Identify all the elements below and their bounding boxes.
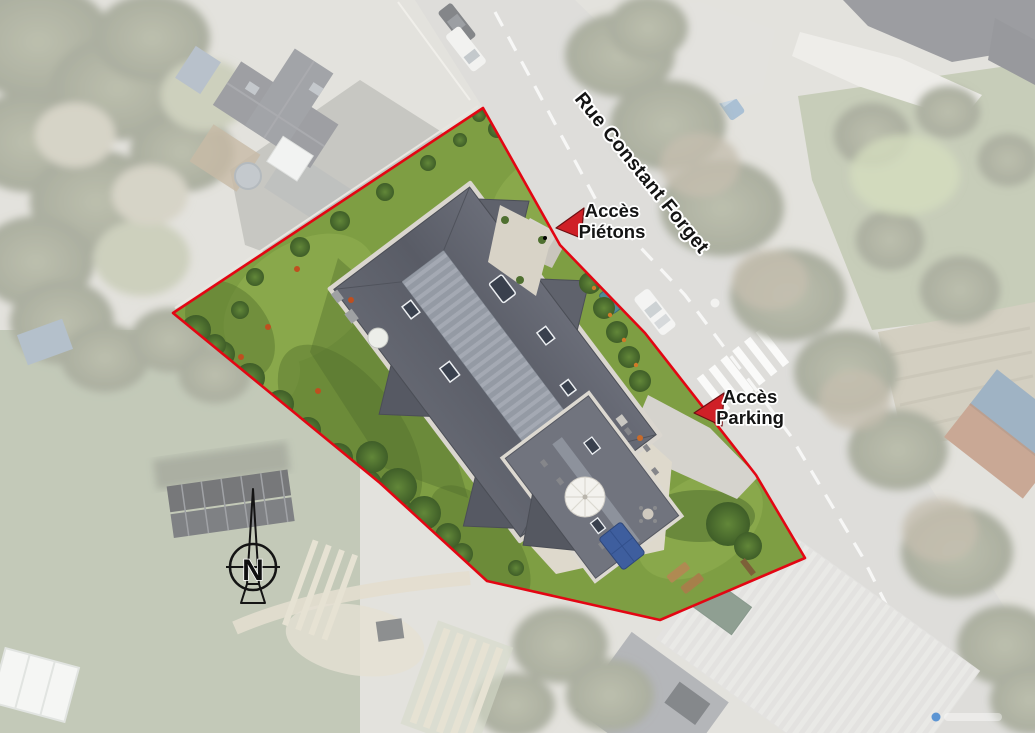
parasol-white [565,477,605,517]
aerial-view: Rue Constant Forget Accès Piétons Accès … [0,0,1035,733]
pedestrian-access-label-line2: Piétons [579,221,646,242]
person-dot [543,236,547,240]
parking-access-label-line1: Accès [723,386,778,407]
pedestrian-access-label-line1: Accès [585,200,640,221]
watermark-dot-icon [932,713,941,722]
watermark-text-blur [944,713,1002,721]
parasol-closed [368,328,388,348]
parking-access-label-line2: Parking [716,407,784,428]
site-plan: Rue Constant Forget Accès Piétons Accès … [0,0,1035,733]
compass-letter: N [242,554,264,587]
